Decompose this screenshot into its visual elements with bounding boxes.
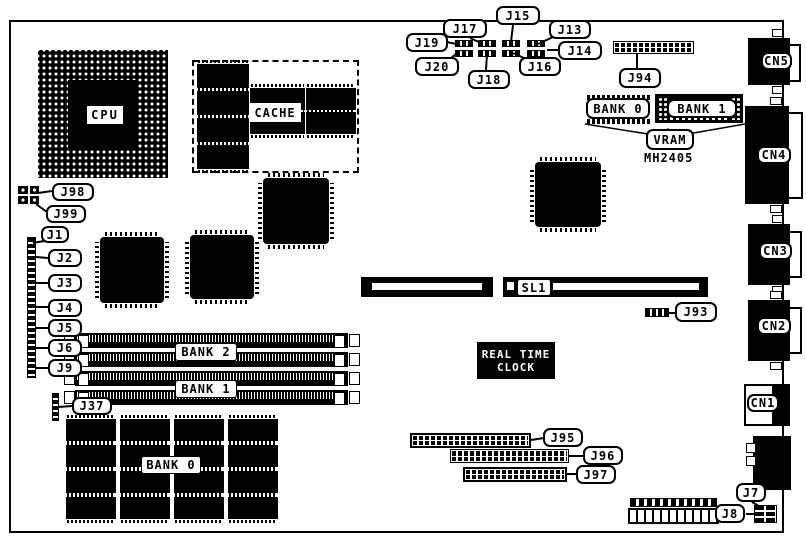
callout-j3: J3 bbox=[48, 274, 82, 292]
callout-j9: J9 bbox=[48, 359, 82, 377]
board-diagram: CPU CACHE BANK 0 BANK 1 VRAM MH2405 bbox=[0, 0, 806, 541]
callout-j96: J96 bbox=[583, 446, 623, 465]
cn5-label: CN5 bbox=[761, 52, 792, 70]
callout-j2: J2 bbox=[48, 249, 82, 267]
simm-bank1-label: BANK 1 bbox=[175, 380, 237, 398]
callout-j8: J8 bbox=[715, 504, 745, 523]
cn4-label: CN4 bbox=[757, 146, 791, 164]
callout-j15: J15 bbox=[496, 6, 540, 25]
callout-j4: J4 bbox=[48, 299, 82, 317]
cn3-label: CN3 bbox=[759, 242, 792, 260]
callout-j17: J17 bbox=[443, 19, 487, 38]
callout-j95: J95 bbox=[543, 428, 583, 447]
callout-j6: J6 bbox=[48, 339, 82, 357]
callout-j99: J99 bbox=[46, 205, 86, 223]
callout-j7: J7 bbox=[736, 483, 766, 502]
callout-j18: J18 bbox=[468, 70, 510, 89]
callout-j16: J16 bbox=[519, 57, 561, 76]
callout-j20: J20 bbox=[415, 57, 459, 76]
cn2-label: CN2 bbox=[757, 317, 791, 335]
callout-j1: J1 bbox=[41, 226, 69, 243]
callout-j14: J14 bbox=[558, 41, 602, 60]
simm-bank2-label: BANK 2 bbox=[175, 343, 237, 361]
vram-label: VRAM bbox=[646, 129, 694, 150]
callout-j93: J93 bbox=[675, 302, 717, 322]
pointer-lines bbox=[0, 0, 806, 541]
cn1-label: CN1 bbox=[747, 394, 779, 412]
callout-j37: J37 bbox=[72, 397, 112, 415]
callout-j19: J19 bbox=[406, 33, 448, 52]
callout-j94: J94 bbox=[619, 68, 661, 88]
callout-j98: J98 bbox=[52, 183, 94, 201]
sl1-label: SL1 bbox=[517, 279, 551, 296]
vram-bank0-label: BANK 0 bbox=[586, 98, 650, 119]
callout-j13: J13 bbox=[549, 20, 591, 39]
callout-j97: J97 bbox=[576, 465, 616, 484]
vram-bank1-label: BANK 1 bbox=[667, 99, 737, 118]
callout-j5: J5 bbox=[48, 319, 82, 337]
dram-bank0-label: BANK 0 bbox=[141, 456, 201, 474]
